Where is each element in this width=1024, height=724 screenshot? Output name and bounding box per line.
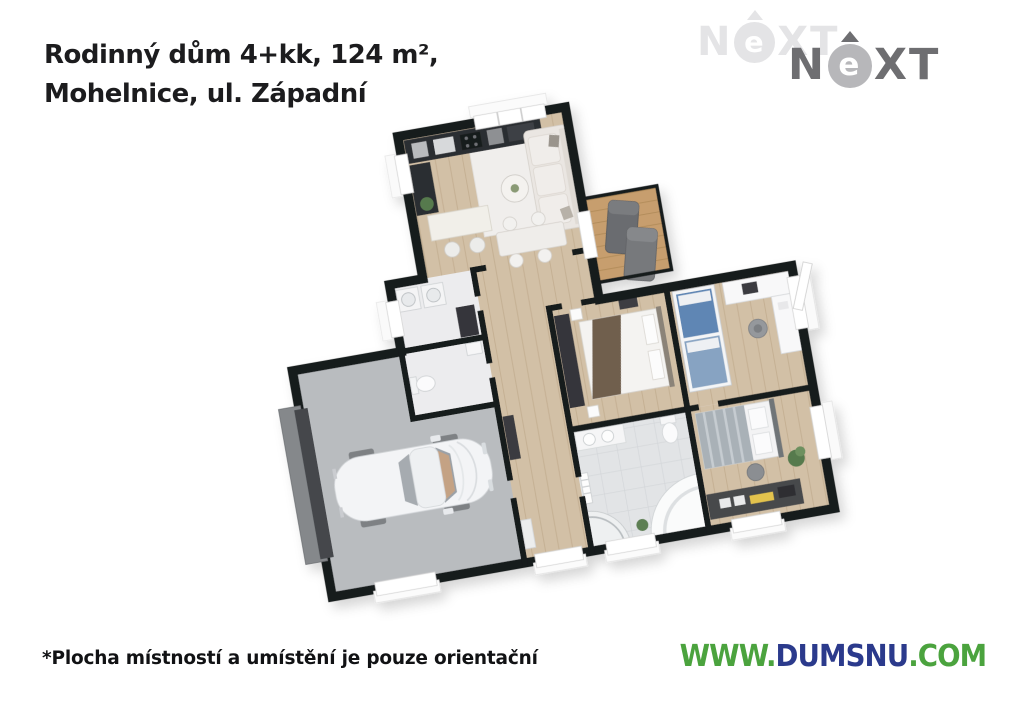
title-line-2: Mohelnice, ul. Západní (44, 75, 438, 114)
title-line-1: Rodinný dům 4+kk, 124 m², (44, 36, 438, 75)
caret-icon (747, 10, 763, 20)
disclaimer-text: *Plocha místností a umístění je pouze or… (42, 648, 538, 669)
nightstand (570, 308, 583, 321)
nightstand (587, 405, 600, 418)
next-logo-e-icon: e (734, 22, 775, 63)
caret-icon (841, 31, 859, 42)
url-tld: .COM (908, 639, 986, 674)
double-bed (579, 306, 675, 401)
url-www: WWW. (679, 639, 775, 674)
next-logo-e-icon: e (828, 44, 872, 88)
page-title: Rodinný dům 4+kk, 124 m², Mohelnice, ul.… (44, 36, 438, 114)
wc-sink (465, 341, 482, 355)
next-logo: N e XT (788, 44, 940, 88)
url-domain: DUMSNU (775, 639, 908, 674)
website-url: WWW.DUMSNU.COM (679, 639, 986, 674)
